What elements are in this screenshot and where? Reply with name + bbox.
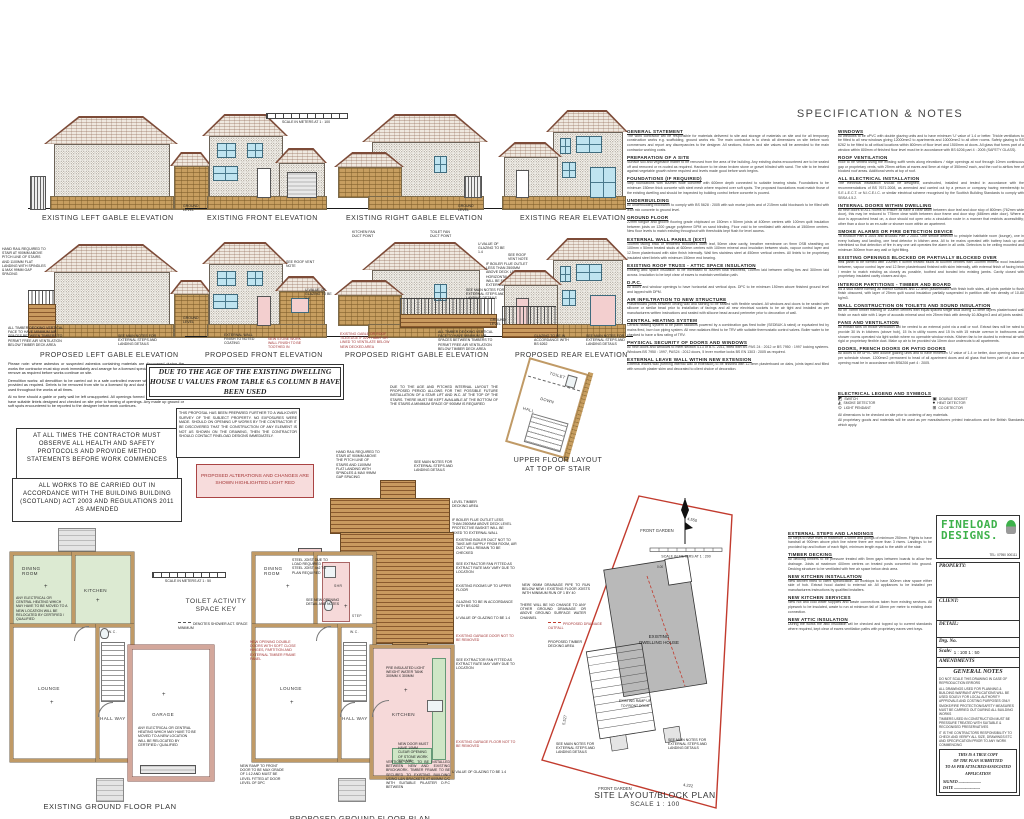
spec-body: 22mm tongue and groove flooring grade ch…: [627, 220, 829, 234]
relocation-note: ANY ELECTRICAL OR CENTRAL HEATING WHICH …: [16, 596, 68, 621]
upper-layout-note: DUE TO THE AGE AND PITCHED INTERNAL LAYO…: [390, 385, 498, 406]
kitchen-sink: [427, 700, 443, 712]
room-label: W.C.: [108, 630, 117, 634]
phone-number: TEL: 07950 000111: [989, 553, 1017, 557]
spec-section: NEW ATTIC INSULATION During the works th…: [788, 617, 932, 631]
spec-body: The work contractor will be responsible …: [627, 134, 829, 153]
roof-shape: [44, 244, 178, 272]
ramp-label-2: TO FRONT DOOR: [621, 704, 650, 708]
spec-body: External leaves wall (forming internal w…: [627, 362, 829, 371]
spec-body: All new doors to ALL rooms to ensure all…: [838, 208, 1024, 227]
deck-handrail: [28, 290, 54, 305]
building-group: [574, 556, 716, 753]
spec-section: WALL CONSTRUCTION ON TOILETS AND SOUND I…: [838, 303, 1024, 317]
scale-bar-label: SCALE IN METERS AT 1 : 50: [150, 579, 226, 583]
scale-bar-1-100: [266, 113, 348, 119]
roof-shape: [362, 114, 488, 142]
room-lounge: [10, 624, 102, 762]
roof-texture: [500, 144, 560, 158]
general-notes-list: DO NOT SCALE THIS DRAWING IN CASE OF REP…: [937, 677, 1019, 747]
new-patio-door: [590, 295, 616, 326]
legend-text: DENOTES SHOWER ACT. SPACE MINIMUM: [178, 622, 248, 630]
spec-section: EXISTING OPENINGS BLOCKED OR PARTIALLY B…: [838, 255, 1024, 279]
annotation-red: NEW STONE WORK WALL FINISH TO BE TOOTHED…: [268, 337, 308, 350]
annotation-red: EXISTING GARAGE FLOOR NOT TO BE REMOVED: [456, 740, 518, 748]
annotation: EXISTING BOILER DUCT NOT TO TAKE AIR SUP…: [456, 538, 518, 555]
spec-section: UNDERBUILDING All underbuilding blockwor…: [627, 198, 829, 212]
spec-body: All doors to be uPVC with double glazing…: [838, 351, 1024, 365]
spec-section: INTERNAL DOORS WITHIN DWELLING All new d…: [838, 203, 1024, 227]
spec-title: SPECIFICATION & NOTES: [740, 108, 1020, 120]
low-wall-render: [504, 157, 558, 198]
window: [576, 136, 602, 153]
annotation: SEE MAIN NOTES FOR EXTERNAL STEPS AND LA…: [118, 334, 166, 347]
front-porch-steps: [96, 778, 124, 802]
stamp-line: APPLICATION: [941, 771, 1015, 777]
stone-base: [502, 196, 626, 210]
title-line-1: UPPER FLOOR LAYOUT: [514, 457, 603, 464]
elevation-title: EXISTING RIGHT GABLE ELEVATION: [346, 215, 483, 222]
legend-row: ⊙ LIGHT PENDANT: [838, 406, 930, 411]
site-scale-label: SCALE IN METERS AT 1 : 200: [661, 555, 710, 559]
dwelling-label-1: EXISTING: [649, 634, 670, 639]
annotation: VERTICAL D.P.C. TO BE INSTALLED BETWEEN …: [386, 760, 450, 789]
annotation: SEE MAIN NOTES FOR EXTERNAL STEPS AND LA…: [586, 334, 628, 347]
window: [247, 271, 263, 286]
centre-mark: +: [290, 700, 294, 706]
spec-section: EXTERNAL LEAVE WALL WITHIN NEW EXTENSION…: [627, 357, 829, 371]
dimension: 5.527: [561, 714, 568, 725]
legend-label: LIGHT PENDANT: [844, 406, 871, 410]
spec-body: Infill panel to be formed with 100mm x 5…: [838, 260, 1024, 279]
drainage-legend: PROPOSED DRAINAGE OUTFALL: [548, 622, 606, 630]
deck-step-detail: [380, 480, 416, 500]
spec-body: All underbuilding blockwork to comply wi…: [627, 203, 829, 212]
spec-section: ALL ELECTRICAL INSTALLATION The electric…: [838, 176, 1024, 200]
annotation: EXTERNAL WALL FINISH TO NOTED COATING: [224, 333, 260, 346]
spec-section: ROOF VENTILATION Roof to be vented using…: [838, 155, 1024, 174]
drg-no-field: Drg. No.: [937, 638, 1019, 648]
legend-symbol-icon: ⊙: [838, 406, 842, 411]
spec-section: FOUNDATIONS (IF REQUIRED) Strip foundati…: [627, 176, 829, 195]
spec-section: PREPARATION OF A SITE Surface soil and v…: [627, 155, 829, 174]
annotation: SEE MAIN NOTES FOR EXTERNAL STEPS AND LA…: [556, 742, 600, 755]
spec-body: All steps to have rises of maximum 170mm…: [788, 536, 932, 550]
annotation: SEE EXTRACTOR FAN FITTED AS EXTRACT RATE…: [456, 658, 518, 671]
date-line: DATE ...........................: [941, 786, 1015, 790]
annotation-red: EXISTING GARAGE DOOR NOT TO BE REMOVED: [456, 634, 518, 642]
closing-note: All proprietary goods and materials will…: [838, 418, 1024, 427]
roof-texture: [500, 272, 560, 286]
plan-title: EXISTING GROUND FLOOR PLAN: [20, 802, 200, 811]
down-label: DOWN: [540, 396, 555, 405]
title-block: FINELOAD DESIGNS. TEL: 07950 000111 PROP…: [936, 515, 1020, 796]
centre-mark: +: [96, 598, 100, 604]
title-line-2: AT TOP OF STAIR: [525, 466, 590, 473]
annotation: GLAZING TO BE IN ACCORDANCE WITH BS 6262: [534, 334, 574, 347]
spec-body: All on 75mm timber framing or 100mm cent…: [838, 308, 1024, 317]
spec-body: Existing attic space insulation to be in…: [627, 268, 829, 277]
centre-mark: +: [286, 584, 290, 590]
window: [213, 166, 238, 181]
key-line-1: TOILET ACTIVITY: [186, 598, 247, 605]
annotation: SEE MAIN NOTES FOR EXTERNAL STEPS AND LA…: [668, 738, 712, 751]
annotation: SEE ROOF VENT NOTE: [286, 260, 316, 268]
centre-mark: +: [162, 692, 166, 698]
amendments-field: AMENDMENTS: [937, 658, 1019, 668]
client-label: CLIENT:: [937, 598, 1019, 605]
annotation: U VALUE OF GLAZING TO BE 1.4: [456, 616, 518, 620]
legend-row: ⊞ CO DETECTOR: [933, 406, 1024, 411]
annotation: NEW 90MM DRAINAGE PIPE TO RUN BELOW NEW …: [522, 583, 590, 596]
annotation: PRE INSULATED LIGHT WEIGHT WATER TANK 30…: [386, 666, 426, 679]
stairs: [101, 642, 125, 702]
brand-logo-icon: [1006, 520, 1016, 534]
label-text: ROOM: [22, 571, 38, 576]
upper-layout-title: UPPER FLOOR LAYOUT AT TOP OF STAIR: [508, 456, 608, 474]
spec-body: To BS5839 Part 6 2004 and BS5446 Part 2 …: [838, 234, 1024, 253]
roof-texture: [364, 116, 486, 143]
spec-section: GROUND FLOOR 22mm tongue and groove floo…: [627, 215, 829, 234]
legend-symbol-icon: ⊞: [933, 406, 937, 411]
relocation-note: ANY ELECTRICAL OR CENTRAL HEATING WHICH …: [138, 726, 196, 747]
label-text: HALL: [100, 716, 113, 721]
spec-body: All extract fans on trickle ventilation …: [838, 325, 1024, 344]
deck-platform: [400, 314, 497, 328]
label-text: ROOM: [264, 571, 280, 576]
wall-render: [54, 144, 170, 198]
room-label: HALL WAY: [100, 716, 126, 721]
spec-body: During the works the attic insulation wi…: [788, 622, 932, 631]
scale-bar-1-50: [152, 572, 226, 578]
label-text: WAY: [357, 716, 368, 721]
annotation: SEE MAIN NOTES FOR EXTERNAL STEPS AND LA…: [414, 460, 454, 473]
ground-level-label: GROUND LEVEL: [183, 204, 201, 212]
electrical-legend: ELECTRICAL LEGEND AND SYMBOLS ◩ SWITCH ▣…: [838, 388, 1024, 427]
annotation: NEW RAMP TO FRONT DOOR TO BE MAX GRADE O…: [240, 764, 284, 785]
red-dash-swatch: [548, 622, 561, 623]
survey-disclaimer-box: THIS PROPOSAL HAS BEEN PREPARED FURTHER …: [176, 408, 300, 458]
north-arrow-flag: [685, 522, 693, 530]
spec-section: WINDOWS All windows to be uPVC with doub…: [838, 129, 1024, 153]
room-label: DININGROOM: [264, 566, 282, 576]
plan-title: PROPOSED GROUND FLOOR PLAN: [255, 814, 465, 819]
roof-texture: [46, 246, 176, 273]
scale-field: Scale: 1 : 100 1 : 50: [937, 648, 1019, 658]
centre-mark: +: [44, 584, 48, 590]
spec-section: EXTERNAL STEPS AND LANDINGS All steps to…: [788, 531, 932, 550]
wall-render: [54, 272, 170, 326]
centre-mark: +: [344, 604, 348, 610]
window: [213, 294, 238, 309]
detail-field: DETAIL:: [937, 621, 1019, 638]
spec-section: NEW KITCHEN INSTALLATION New kitchen fit…: [788, 574, 932, 593]
spec-body: New kitchen fitted to client specificati…: [788, 579, 932, 593]
annotation: SEE NEW OPENING DETAIL AND NOTES: [306, 598, 340, 606]
spec-body: The electrical installation should be de…: [838, 181, 1024, 200]
room-label: KITCHEN: [84, 588, 107, 593]
room-label: LOUNGE: [38, 686, 60, 691]
ground-level-label: GROUND LEVEL: [490, 318, 508, 326]
annotation: U VALUE OF GLAZING TO BE 1.4: [305, 288, 333, 301]
spec-section: PHYSICAL SECURITY OF DOORS AND WINDOWS A…: [627, 340, 829, 354]
annotation-red: EXISTING GABLE OR ROOF TILE/EDGE IF ANY …: [340, 332, 396, 349]
stamp-line: TO AS PER ATTACHED/ASSOCIATED: [941, 764, 1015, 770]
elevation-title: EXISTING REAR ELEVATION: [520, 215, 626, 222]
detail-label: DETAIL:: [937, 621, 1019, 628]
roof-shape: [202, 242, 288, 264]
spec-column-2a: WINDOWS All windows to be uPVC with doub…: [838, 126, 1024, 386]
room-label: SHR: [334, 584, 342, 588]
garage-stone-wall: [338, 295, 402, 326]
ramp-label-1: EXISTING RAMP UP: [619, 699, 652, 703]
annotation: THERE WILL BE NO CHANGE TO ANY OTHER GRO…: [520, 603, 586, 620]
garage-stone-wall: [338, 167, 402, 198]
roof-shape: [546, 238, 628, 260]
spec-section: D.P.C. All doors and window openings to …: [627, 280, 829, 294]
dashed-swatch: [178, 622, 191, 623]
spec-section: EXTERNAL WALL PANELS (EXT) 100mm facing …: [627, 237, 829, 261]
drawing-sheet: EXISTING LEFT GABLE ELEVATION EXISTING F…: [0, 0, 1024, 819]
annotation: ALL TIMBER DECKING VERTICAL FACE TO HAVE…: [8, 326, 66, 347]
deck-steps-south-west: [610, 735, 628, 751]
annotation: ALL TIMBER DECKING VERTICAL FACE TO HAVE…: [438, 330, 500, 351]
elevation-title: PROPOSED LEFT GABLE ELEVATION: [40, 352, 179, 359]
spec-body: New hot and cold water supplies and wast…: [788, 600, 932, 614]
rear-door: [516, 170, 529, 198]
site-plan-title: SITE LAYOUT/BLOCK PLAN: [555, 790, 755, 800]
garage-door-plan: [140, 765, 196, 774]
scale-value: 1 : 100 1 : 50: [954, 648, 980, 657]
label-text: HALL: [342, 716, 355, 721]
ground-level-label: GROUND LEVEL: [458, 204, 476, 212]
pink-highlight-box: PROPOSED ALTERATIONS AND CHANGES ARE SHO…: [196, 464, 314, 498]
spec-section: EXISTING ROOF TRUSS - ATTIC SPACE INSULA…: [627, 263, 829, 277]
site-plan-scale: SCALE 1 : 100: [555, 801, 755, 808]
key-line-2: SPACE KEY: [196, 606, 237, 613]
dimension: 4.550: [687, 516, 699, 523]
spec-body: All windows to be uPVC with double glazi…: [838, 134, 1024, 153]
general-note-line: DO NOT SCALE THIS DRAWING IN CASE OF REP…: [939, 677, 1017, 685]
annotation: GLAZING TO BE IN ACCORDANCE WITH BS 6262: [456, 600, 518, 608]
roof-texture: [548, 240, 626, 261]
dimension: 4.222: [683, 782, 694, 788]
general-note-line: TIMBERS USED IN CONSTRUCTION MUST BE PRE…: [939, 717, 1017, 729]
room-label: HALL WAY: [342, 716, 368, 721]
site-plan-svg: SCALE IN METERS AT 1 : 200 FRONT GARDEN …: [535, 490, 770, 810]
roof-shape: [546, 110, 628, 132]
elevation-title: PROPOSED FRONT ELEVATION: [205, 352, 323, 359]
centre-mark: +: [404, 688, 408, 694]
spec-column-1: GENERAL STATEMENT The work contractor wi…: [627, 126, 829, 476]
general-note-line: IT IS THE CONTRACTORS RESPONSIBILITY TO …: [939, 731, 1017, 747]
stairs: [343, 642, 367, 702]
roof-shape: [362, 242, 488, 270]
annotation: TOILET FAN DUCT POINT: [430, 230, 456, 238]
annotation: U VALUE OF GLAZING TO BE 1.4: [452, 770, 514, 774]
room-label: W.C.: [350, 630, 359, 634]
annotation: PROPOSED TIMBER DECKING AREA: [548, 640, 586, 648]
stairs: [524, 413, 569, 452]
stone-base: [50, 196, 174, 210]
patio-door: [590, 167, 616, 198]
spec-section: CENTRAL HEATING SYSTEM Central heating s…: [627, 318, 829, 337]
front-porch-steps: [338, 778, 366, 802]
client-field: CLIENT:: [937, 598, 1019, 621]
toilet-key-title: TOILET ACTIVITY SPACE KEY: [176, 598, 256, 615]
annotation: HAND RAIL REQUIRED TO STAIR AT 900MM ABO…: [336, 450, 380, 479]
general-note-line: SMOKE/FIRE PROTECTION/SAFETY MEASURES MU…: [939, 704, 1017, 716]
legend-label: CO DETECTOR: [938, 406, 963, 410]
wc-fixture: [565, 375, 578, 389]
annotation: KITCHEN FAN DUCT POINT: [352, 230, 378, 238]
spec-section: INTERIOR PARTITIONS - TIMBER AND BOARD A…: [838, 282, 1024, 301]
roof-texture: [277, 150, 325, 164]
front-door: [257, 168, 271, 198]
room-label: KITCHEN: [392, 712, 415, 717]
window: [434, 156, 447, 173]
elevation-title: PROPOSED RIGHT GABLE ELEVATION: [345, 352, 489, 359]
roof-texture: [364, 244, 486, 271]
dimension: 0.00: [657, 565, 663, 569]
logo-box: FINELOAD DESIGNS. TEL: 07950 000111: [936, 515, 1020, 559]
existing-rear-elevation: [498, 110, 633, 214]
spec-body: Surface soil and vegetable matter to be …: [627, 160, 829, 174]
fence-gate: [30, 176, 46, 210]
existing-right-gable-elevation: [338, 110, 483, 214]
centre-mark: +: [50, 700, 54, 706]
footprint-notch: [665, 556, 692, 585]
front-garden-label: FRONT GARDEN: [640, 528, 673, 533]
roof-texture: [46, 118, 176, 145]
annotation: STEEL JOIST DUE TO LOAD REQUIRED STEEL J…: [292, 558, 332, 575]
annotation: SEE ROOF VENT NOTE: [508, 253, 536, 261]
scale-label: Scale:: [937, 648, 954, 657]
stone-base: [207, 196, 327, 210]
spec-body: All new doors and windows to meet sectio…: [627, 345, 829, 354]
contractor-note-box: AT ALL TIMES THE CONTRACTOR MUST OBSERVE…: [16, 428, 178, 480]
spec-section: SMOKE ALARMS OR FIRE DETECTION DEVICE To…: [838, 229, 1024, 253]
fence-gate: [464, 176, 482, 198]
window: [562, 290, 576, 306]
room-label: STEP: [352, 614, 362, 618]
spec-section: DOORS, FRENCH DOORS OR PATIO DOORS All d…: [838, 346, 1024, 365]
amendments-label: AMENDMENTS: [937, 658, 1019, 665]
spec-body: All decking timbers to be pressure treat…: [788, 557, 932, 571]
property-field: PROPERTY:: [937, 563, 1019, 598]
certification-stamp-box: THIS IS A TRUE COPYOF THE PLAN SUBMITTED…: [939, 749, 1017, 793]
room-label: HALL: [522, 406, 535, 414]
property-label: PROPERTY:: [937, 563, 1019, 570]
room-label: TOILET: [549, 371, 566, 380]
existing-front-elevation: [195, 110, 335, 214]
annotation-red: NEW OPENING DOUBLE DOORS WITH SOFT CLOSE…: [250, 640, 302, 661]
title-block-body: PROPERTY: CLIENT: DETAIL: Drg. No. Scale…: [936, 562, 1020, 796]
works-note-box: ALL WORKS TO BE CARRIED OUT IN ACCORDANC…: [12, 478, 182, 522]
roof-shape: [44, 116, 178, 144]
window: [576, 264, 602, 281]
annotation: SEE EXTRACTOR FAN FITTED AS EXTRACT RATE…: [456, 562, 518, 575]
drg-no-label: Drg. No.: [937, 638, 1019, 645]
label-text: WAY: [115, 716, 126, 721]
room-label: GARAGE: [152, 712, 174, 717]
legend-grid: ◩ SWITCH ▣ DOUBLE SOCKET ◭ SMOKE DETECTO…: [838, 397, 1024, 411]
dwelling-label-2: DWELLING HOUSE: [639, 640, 679, 645]
spec-section: TIMBER DECKING All decking timbers to be…: [788, 552, 932, 571]
u-values-box: DUE TO THE AGE OF THE EXISTING DWELLING …: [146, 364, 344, 400]
deck-handrail: [502, 306, 556, 325]
room-label: LOUNGE: [280, 686, 302, 691]
legend-text: PROPOSED DRAINAGE OUTFALL: [548, 622, 602, 630]
new-front-door: [257, 296, 271, 326]
roof-texture: [548, 112, 626, 133]
annotation: IF BOILER FLUE OUTLET LESS THAN 2500MM A…: [452, 518, 512, 535]
stamp-lines: THIS IS A TRUE COPYOF THE PLAN SUBMITTED…: [941, 752, 1015, 777]
spec-section: NEW KITCHEN SERVICES New hot and cold wa…: [788, 595, 932, 614]
room-label: DININGROOM: [22, 566, 40, 576]
spec-body: Plasterboard joints between ceiling wall…: [627, 302, 829, 316]
spec-body: As a stud frame forming all interior sur…: [838, 287, 1024, 301]
spec-body: Central heating system to be panel radia…: [627, 323, 829, 337]
spec-section: GENERAL STATEMENT The work contractor wi…: [627, 129, 829, 153]
elevation-title: EXISTING LEFT GABLE ELEVATION: [42, 215, 174, 222]
spec-body: Roof to be vented using the existing sof…: [838, 160, 1024, 174]
window: [247, 143, 263, 158]
deck-plan-detail: [330, 498, 450, 534]
window: [217, 143, 236, 158]
window: [217, 271, 236, 286]
annotation: HAND RAIL REQUIRED TO STAIR AT 900MM ABO…: [2, 247, 48, 276]
spec-column-3: EXTERNAL STEPS AND LANDINGS All steps to…: [788, 528, 932, 760]
toilet-key-legend: DENOTES SHOWER ACT. SPACE MINIMUM: [178, 622, 256, 630]
general-notes-block: GENERAL NOTES DO NOT SCALE THIS DRAWING …: [937, 668, 1019, 747]
annotation: EXISTING ROOMS UP TO UPPER FLOOR: [456, 584, 518, 592]
spec-section: AIR INFILTRATION TO NEW STRUCTURE Plaste…: [627, 297, 829, 316]
general-notes-title: GENERAL NOTES: [937, 668, 1019, 676]
window: [560, 266, 571, 282]
legend-title: ELECTRICAL LEGEND AND SYMBOLS: [838, 391, 1024, 396]
existing-left-gable-elevation: [28, 110, 213, 214]
general-note-line: ALL DRAWINGS USED FOR PLANNING & BUILDIN…: [939, 687, 1017, 703]
spec-body: All doors and window openings to have ho…: [627, 285, 829, 294]
spec-body: Strip foundations with 600mm wide concre…: [627, 181, 829, 195]
garage-door: [287, 172, 317, 198]
rear-steps: [58, 528, 96, 552]
elevation-title: EXISTING FRONT ELEVATION: [207, 215, 318, 222]
spec-body: 100mm facing brick or rendered blockwork…: [627, 242, 829, 261]
roof-texture: [204, 244, 286, 265]
upper-floor-layout-plan: TOILET DOWN HALL: [505, 357, 589, 459]
ground-level-label: GROUND LEVEL: [183, 316, 201, 324]
signed-line: SIGNED .......................: [941, 780, 1015, 784]
window: [562, 162, 576, 178]
annotation: LEVEL TIMBER DECKING AREA: [452, 500, 482, 508]
window: [560, 138, 571, 154]
spec-section: FANS AND VENTILATION All extract fans on…: [838, 320, 1024, 344]
